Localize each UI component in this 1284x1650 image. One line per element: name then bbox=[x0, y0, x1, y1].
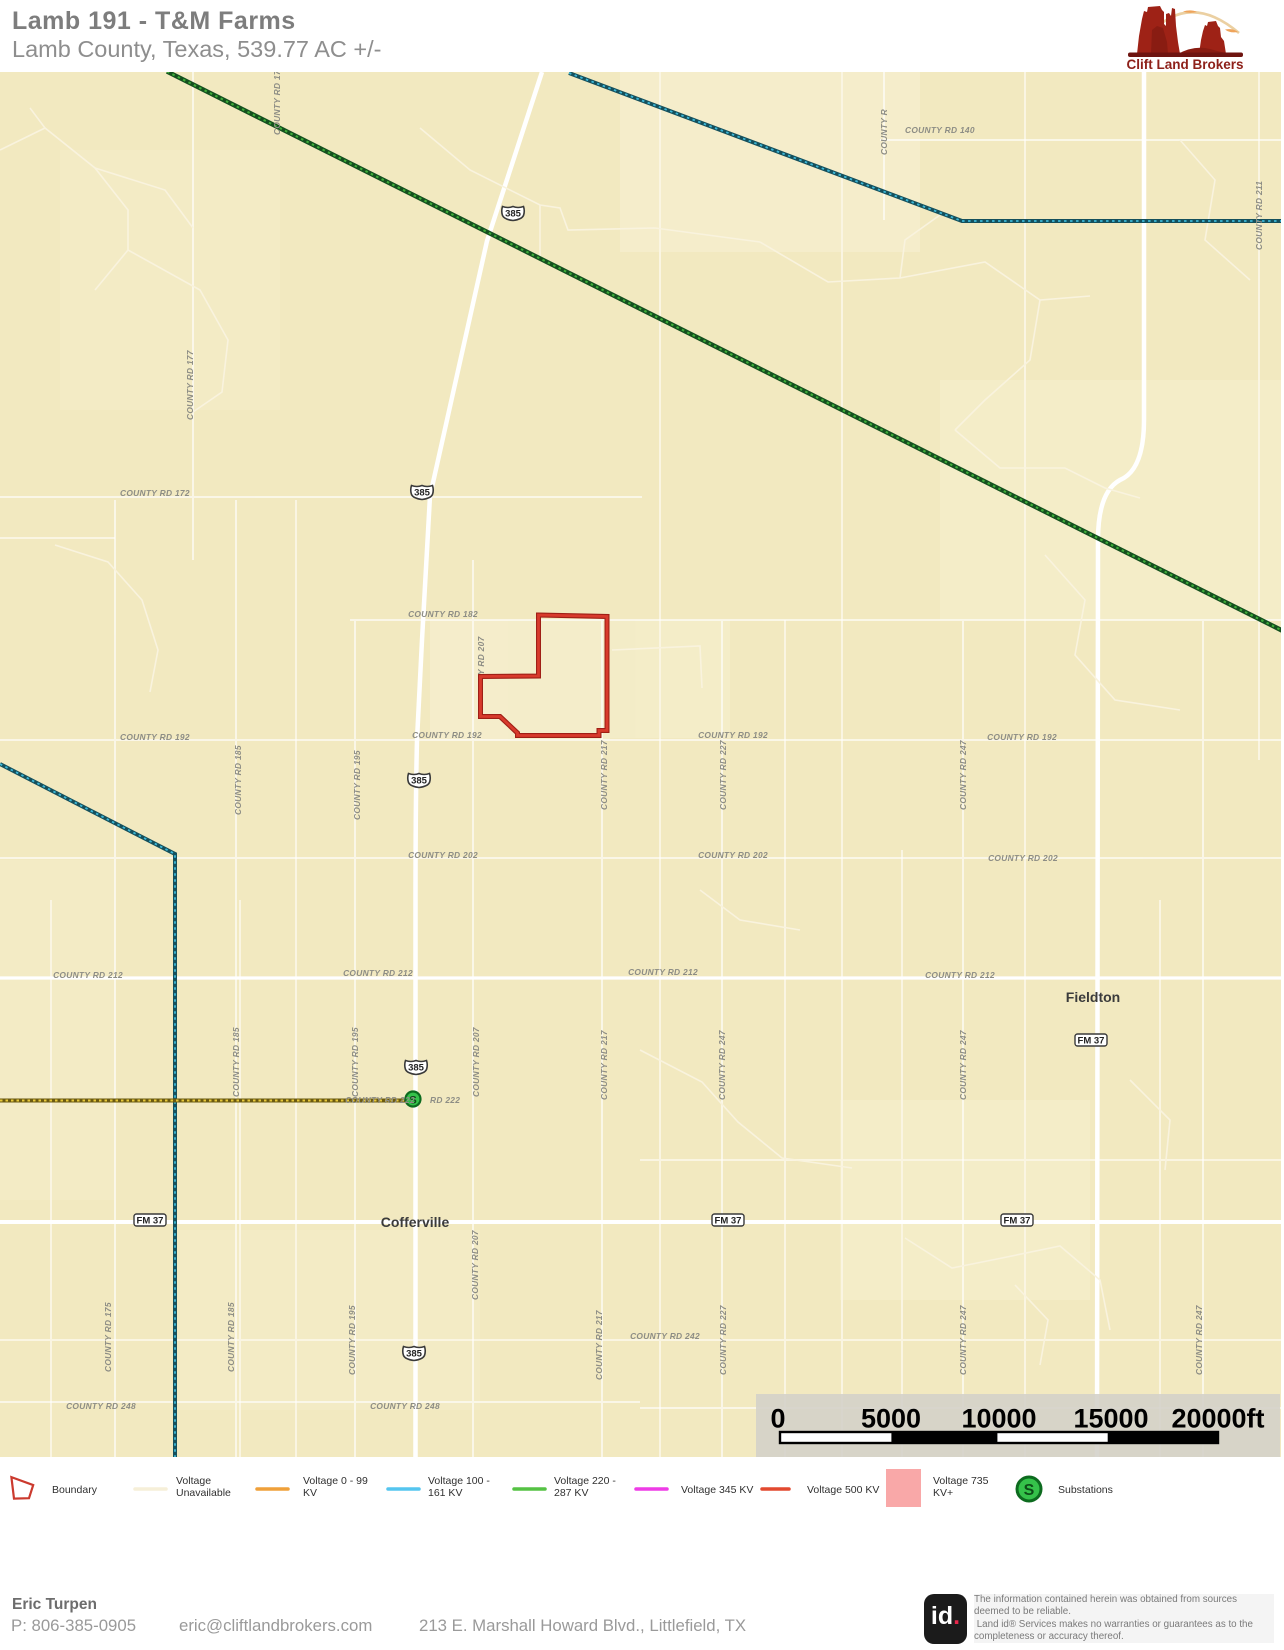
svg-text:COUNTY RD 247: COUNTY RD 247 bbox=[1194, 1305, 1204, 1375]
svg-text:Voltage 0 - 99: Voltage 0 - 99 bbox=[303, 1475, 368, 1487]
svg-text:Voltage 735: Voltage 735 bbox=[933, 1475, 989, 1487]
svg-text:Unavailable: Unavailable bbox=[176, 1487, 231, 1499]
svg-text:COUNTY RD 172: COUNTY RD 172 bbox=[120, 488, 190, 498]
svg-text:COUNTY RD 247: COUNTY RD 247 bbox=[958, 740, 968, 810]
svg-text:RD 222: RD 222 bbox=[430, 1095, 460, 1105]
svg-text:COUNTY RD 182: COUNTY RD 182 bbox=[408, 609, 478, 619]
svg-text:COUNTY RD 217: COUNTY RD 217 bbox=[594, 1310, 604, 1380]
svg-text:COUNTY RD 207: COUNTY RD 207 bbox=[471, 1027, 481, 1097]
svg-text:Cofferville: Cofferville bbox=[381, 1214, 450, 1230]
svg-text:COUNTY RD 212: COUNTY RD 212 bbox=[925, 970, 995, 980]
svg-text:Substations: Substations bbox=[1058, 1484, 1113, 1496]
svg-text:Voltage 500 KV: Voltage 500 KV bbox=[807, 1484, 879, 1496]
svg-text:COUNTY RD 192: COUNTY RD 192 bbox=[120, 732, 190, 742]
svg-text:KV: KV bbox=[303, 1487, 317, 1499]
svg-text:COUNTY RD 192: COUNTY RD 192 bbox=[698, 730, 768, 740]
svg-text:COUNTY RD 185: COUNTY RD 185 bbox=[226, 1302, 236, 1372]
svg-text:Y RD 207: Y RD 207 bbox=[476, 636, 486, 675]
svg-text:COUNTY RD 242: COUNTY RD 242 bbox=[630, 1331, 700, 1341]
svg-text:COUNTY RD 177: COUNTY RD 177 bbox=[185, 350, 195, 420]
svg-text:COUNTY RD 227: COUNTY RD 227 bbox=[718, 1305, 728, 1375]
svg-text:COUNTY RD 247: COUNTY RD 247 bbox=[958, 1305, 968, 1375]
svg-text:15000: 15000 bbox=[1073, 1404, 1148, 1434]
svg-text:COUNTY RD 217: COUNTY RD 217 bbox=[599, 740, 609, 810]
svg-text:COUNTY RD 195: COUNTY RD 195 bbox=[347, 1305, 357, 1375]
svg-text:5000: 5000 bbox=[861, 1404, 921, 1434]
svg-text:10000: 10000 bbox=[961, 1404, 1036, 1434]
svg-text:COUNTY RD 185: COUNTY RD 185 bbox=[233, 745, 243, 815]
svg-text:COUNTY RD 248: COUNTY RD 248 bbox=[66, 1401, 136, 1411]
svg-text:COUNTY RD 192: COUNTY RD 192 bbox=[412, 730, 482, 740]
svg-text:COUNTY RD 175: COUNTY RD 175 bbox=[103, 1302, 113, 1372]
svg-text:Fieldton: Fieldton bbox=[1066, 989, 1120, 1005]
svg-text:S: S bbox=[1024, 1482, 1035, 1499]
svg-text:COUNTY RD 212: COUNTY RD 212 bbox=[53, 970, 123, 980]
svg-text:COUNTY RD 202: COUNTY RD 202 bbox=[408, 850, 478, 860]
svg-text:COUNTY RD 202: COUNTY RD 202 bbox=[698, 850, 768, 860]
svg-text:COUNTY RD 185: COUNTY RD 185 bbox=[231, 1027, 241, 1097]
svg-text:COUNTY RD 202: COUNTY RD 202 bbox=[988, 853, 1058, 863]
svg-text:COUNTY R: COUNTY R bbox=[879, 109, 889, 155]
svg-text:COUNTY RD 17: COUNTY RD 17 bbox=[272, 72, 282, 135]
svg-text:COUNTY RD 211: COUNTY RD 211 bbox=[1254, 181, 1264, 250]
svg-text:Voltage 345 KV: Voltage 345 KV bbox=[681, 1484, 753, 1496]
svg-text:COUNTY RD 195: COUNTY RD 195 bbox=[352, 750, 362, 820]
svg-text:COUNTY RD 247: COUNTY RD 247 bbox=[717, 1030, 727, 1100]
svg-text:20000ft: 20000ft bbox=[1171, 1404, 1264, 1434]
svg-text:COUNTY RD 195: COUNTY RD 195 bbox=[350, 1027, 360, 1097]
svg-text:Voltage: Voltage bbox=[176, 1475, 211, 1487]
svg-text:COUNTY RD 192: COUNTY RD 192 bbox=[987, 732, 1057, 742]
svg-text:COUNTY RD 207: COUNTY RD 207 bbox=[470, 1230, 480, 1300]
svg-text:COUNTY RD 212: COUNTY RD 212 bbox=[628, 967, 698, 977]
svg-text:Clift Land Brokers: Clift Land Brokers bbox=[1126, 57, 1243, 72]
svg-text:0: 0 bbox=[770, 1404, 785, 1434]
svg-text:Voltage 100 -: Voltage 100 - bbox=[428, 1475, 490, 1487]
svg-text:COUNTY RD 247: COUNTY RD 247 bbox=[958, 1030, 968, 1100]
svg-text:Boundary: Boundary bbox=[52, 1484, 98, 1496]
svg-text:161 KV: 161 KV bbox=[428, 1487, 462, 1499]
svg-text:COUNTY RD 140: COUNTY RD 140 bbox=[905, 125, 975, 135]
svg-text:COUNTY RD 248: COUNTY RD 248 bbox=[370, 1401, 440, 1411]
svg-text:COUNTY RD 217: COUNTY RD 217 bbox=[599, 1030, 609, 1100]
svg-text:287 KV: 287 KV bbox=[554, 1487, 588, 1499]
svg-text:Voltage 220 -: Voltage 220 - bbox=[554, 1475, 616, 1487]
svg-text:COUNTY RD 227: COUNTY RD 227 bbox=[718, 740, 728, 810]
svg-text:KV+: KV+ bbox=[933, 1487, 953, 1499]
svg-text:COUNTY RD 212: COUNTY RD 212 bbox=[343, 968, 413, 978]
